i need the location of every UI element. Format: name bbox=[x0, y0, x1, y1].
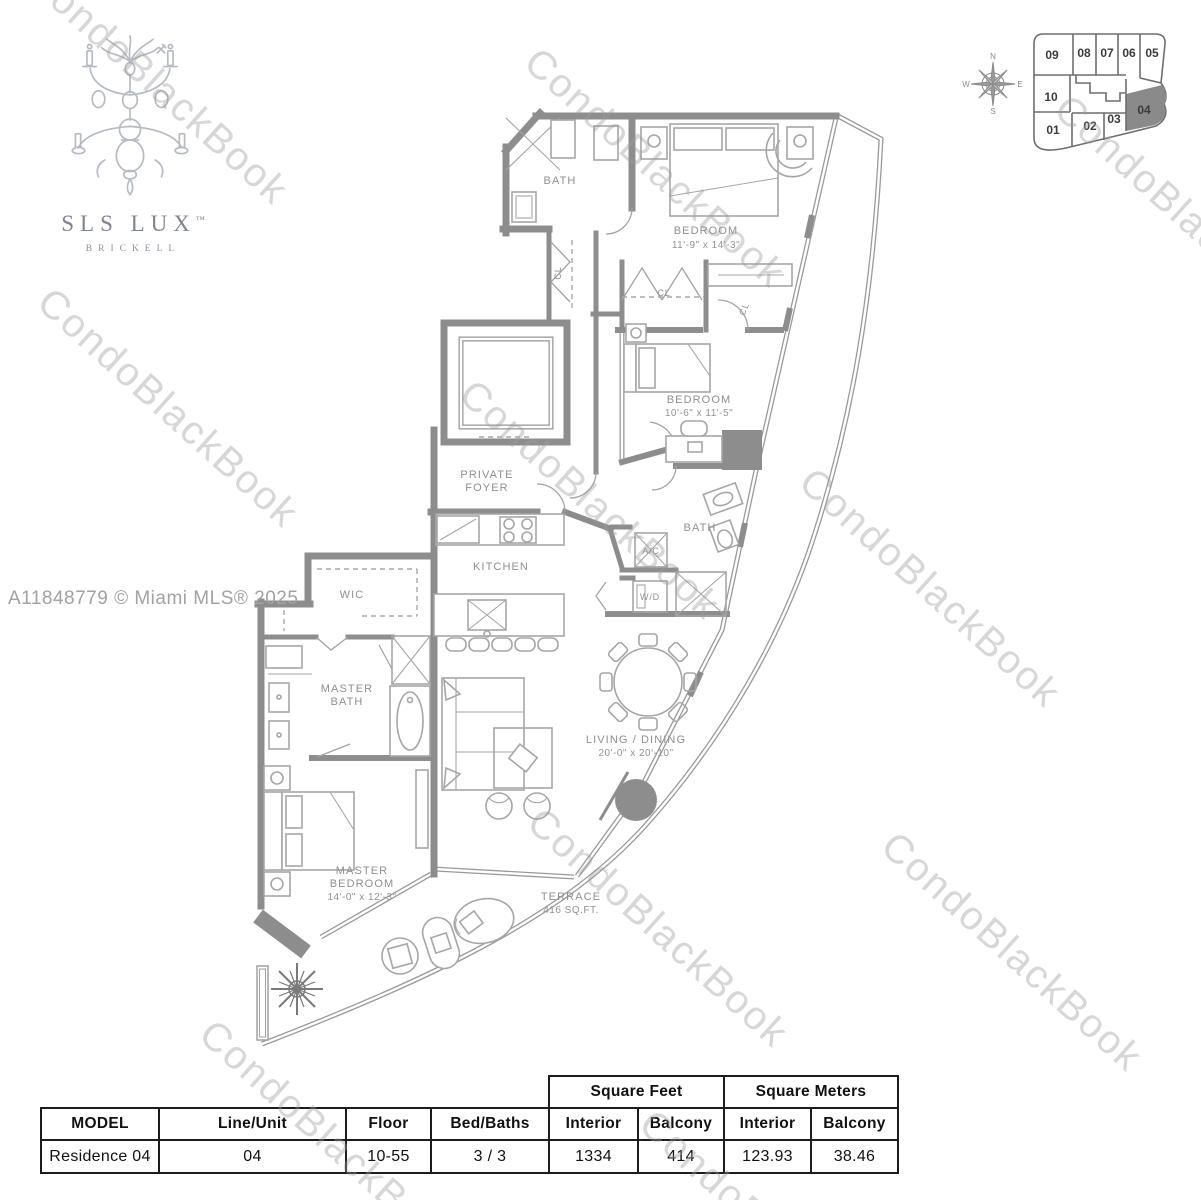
keyplan-unit-10: 10 bbox=[1044, 90, 1058, 104]
table-col-model: MODEL bbox=[40, 1107, 160, 1141]
table-col-bed-baths: Bed/Baths bbox=[430, 1107, 550, 1141]
room-label-bedroom1: BEDROOM bbox=[674, 225, 739, 237]
room-dims-living: 20'-0" x 20'-10" bbox=[598, 748, 673, 759]
desk-chair bbox=[681, 421, 707, 436]
room-label-bath-mid: BATH bbox=[684, 522, 717, 534]
compass-rose: N S W E bbox=[962, 52, 1024, 116]
table-col-interior-sm: Interior bbox=[723, 1107, 812, 1141]
compass-west: W bbox=[962, 80, 970, 89]
compass-east: E bbox=[1017, 80, 1022, 89]
closet-label: CL bbox=[657, 288, 670, 298]
bed-headboard bbox=[624, 344, 636, 392]
keyplan-unit-07: 07 bbox=[1100, 46, 1114, 60]
mls-notice: A11848779 © Miami MLS® 2025 bbox=[8, 588, 298, 610]
table-col-line-unit: Line/Unit bbox=[158, 1107, 347, 1141]
bar-stool bbox=[469, 638, 489, 651]
table-value-balcony-sf: 414 bbox=[637, 1139, 725, 1174]
room-dims-master-bedroom: 14'-0" x 12'-3" bbox=[327, 892, 396, 903]
room-label-living: LIVING / DINING bbox=[586, 734, 686, 746]
room-label-kitchen: KITCHEN bbox=[473, 561, 529, 573]
keyplan-unit-05: 05 bbox=[1145, 46, 1159, 60]
table-col-balcony-sm: Balcony bbox=[810, 1107, 899, 1141]
table-value-line-unit: 04 bbox=[158, 1139, 347, 1174]
keyplan-unit-06: 06 bbox=[1122, 46, 1136, 60]
bar-stool bbox=[446, 638, 466, 651]
bathtub bbox=[390, 686, 430, 756]
table-col-balcony-sf: Balcony bbox=[637, 1107, 725, 1141]
compass-south: S bbox=[990, 107, 995, 116]
table-value-balcony-sm: 38.46 bbox=[810, 1139, 899, 1174]
table-header-square-feet: Square Feet bbox=[548, 1075, 725, 1109]
room-label-bedroom2: BEDROOM bbox=[667, 394, 732, 406]
keyplan-unit-08: 08 bbox=[1077, 46, 1091, 60]
window-walls bbox=[321, 118, 836, 937]
brand-name: SLS LUX™ bbox=[61, 211, 205, 237]
room-dims-bedroom1: 11'-9" x 14'-3" bbox=[672, 240, 740, 251]
bar-stool bbox=[515, 638, 535, 651]
barrel-chair bbox=[486, 793, 512, 819]
building-keyplan: 09 08 07 06 05 10 01 02 03 04 bbox=[1028, 28, 1176, 160]
table-value-model: Residence 04 bbox=[40, 1139, 160, 1174]
bar-stool bbox=[492, 638, 512, 651]
room-label-wd: W/D bbox=[640, 592, 660, 602]
keyplan-unit-02: 02 bbox=[1083, 119, 1097, 133]
room-dims-terrace: 416 SQ.FT. bbox=[543, 905, 599, 916]
plant bbox=[271, 963, 323, 1015]
room-label-bath-top: BATH bbox=[544, 175, 577, 187]
keyplan-unit-01: 01 bbox=[1046, 123, 1060, 137]
shear-wall bbox=[258, 916, 306, 952]
nightstand bbox=[264, 766, 290, 790]
keyplan-unit-04: 04 bbox=[1137, 103, 1151, 117]
room-label-wic: WIC bbox=[340, 589, 365, 601]
night-table bbox=[626, 324, 646, 342]
room-label-foyer-2: FOYER bbox=[465, 482, 508, 494]
bed bbox=[636, 344, 710, 392]
room-label-terrace: TERRACE bbox=[541, 891, 601, 903]
bed-headboard bbox=[264, 792, 282, 870]
table-value-bed-baths: 3 / 3 bbox=[430, 1139, 550, 1174]
room-label-master-bath-2: BATH bbox=[331, 696, 364, 708]
barrel-chair bbox=[524, 793, 550, 819]
bed bbox=[282, 792, 354, 870]
vanity bbox=[703, 483, 742, 515]
room-label-master-bedroom-2: BEDROOM bbox=[330, 878, 395, 890]
keyplan-unit-09: 09 bbox=[1045, 48, 1059, 62]
brand-logo: SLS LUX™ BRICKELL bbox=[55, 34, 205, 254]
floorplan-sheet: CondoBlackBook CondoBlackBook CondoBlack… bbox=[0, 0, 1201, 1200]
room-label-master-bedroom-1: MASTER bbox=[336, 865, 388, 877]
sink bbox=[269, 683, 289, 712]
table-value-floor: 10-55 bbox=[345, 1139, 432, 1174]
keyplan-unit-03: 03 bbox=[1107, 112, 1121, 126]
table-col-interior-sf: Interior bbox=[548, 1107, 639, 1141]
table-value-interior-sm: 123.93 bbox=[723, 1139, 812, 1174]
room-label-master-bath-1: MASTER bbox=[321, 683, 373, 695]
trademark-symbol: ™ bbox=[196, 214, 205, 224]
bar-stool bbox=[538, 638, 558, 651]
tv-console bbox=[416, 770, 428, 848]
room-label-ac: A/C bbox=[642, 546, 659, 556]
nightstand bbox=[787, 127, 813, 159]
doors bbox=[316, 208, 748, 757]
compass-north: N bbox=[990, 52, 996, 61]
sofa bbox=[442, 678, 524, 790]
room-label-foyer-1: PRIVATE bbox=[460, 469, 513, 481]
sink bbox=[269, 721, 289, 749]
bed bbox=[670, 124, 778, 216]
table-col-floor: Floor bbox=[345, 1107, 432, 1141]
desk bbox=[666, 436, 722, 462]
dining-table bbox=[614, 648, 682, 716]
table-header-square-meters: Square Meters bbox=[723, 1075, 899, 1109]
brand-location: BRICKELL bbox=[61, 244, 205, 254]
planter bbox=[257, 966, 268, 1040]
vanity-mirror bbox=[266, 646, 302, 668]
table-value-interior-sf: 1334 bbox=[548, 1139, 639, 1174]
room-dims-bedroom2: 10'-6" x 11'-5" bbox=[665, 408, 733, 419]
nightstand bbox=[264, 872, 290, 896]
closet-label: CL bbox=[737, 301, 751, 317]
chandelier-logo-art bbox=[55, 34, 205, 202]
nightstand bbox=[641, 127, 667, 159]
closet-label: CL bbox=[553, 266, 563, 279]
